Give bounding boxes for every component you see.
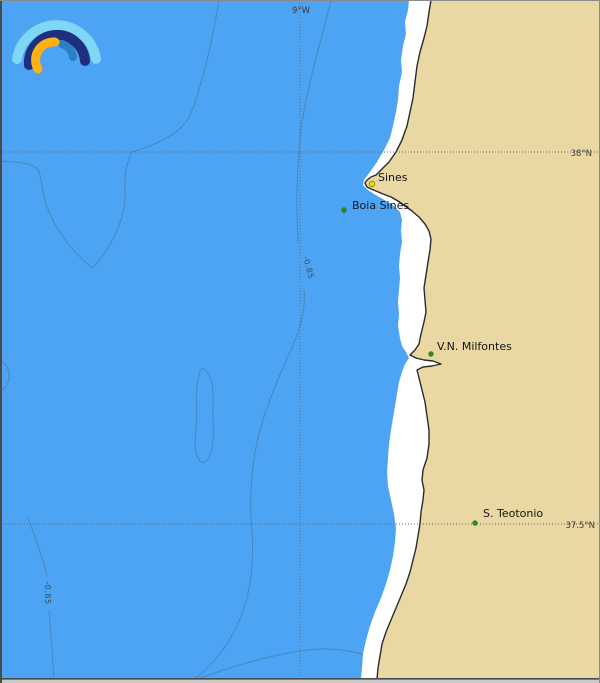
station-dot-s-teotonio[interactable] [473,521,478,526]
parallel-bottom-label: 37.5°N [565,521,595,531]
bottom-strip [0,680,600,683]
station-label-s-teotonio[interactable]: S. Teotonio [483,507,543,520]
station-dot-vn-milfontes[interactable] [429,352,434,357]
depth-label-bottom: -0.85 [43,581,52,604]
station-label-sines[interactable]: Sines [378,171,408,184]
map-canvas[interactable]: 9°W 38°N 37.5°N -0.85 -0.85 Sines Boia S… [0,0,600,683]
station-label-boia-sines[interactable]: Boia Sines [352,199,409,212]
map-window: 9°W 38°N 37.5°N -0.85 -0.85 Sines Boia S… [0,0,600,683]
left-frame-line [0,0,2,683]
station-label-vn-milfontes[interactable]: V.N. Milfontes [437,340,512,353]
meridian-label: 9°W [292,6,311,16]
parallel-top-label: 38°N [571,149,592,159]
station-dot-sines[interactable] [369,181,375,187]
station-dot-boia-sines[interactable] [342,208,347,213]
